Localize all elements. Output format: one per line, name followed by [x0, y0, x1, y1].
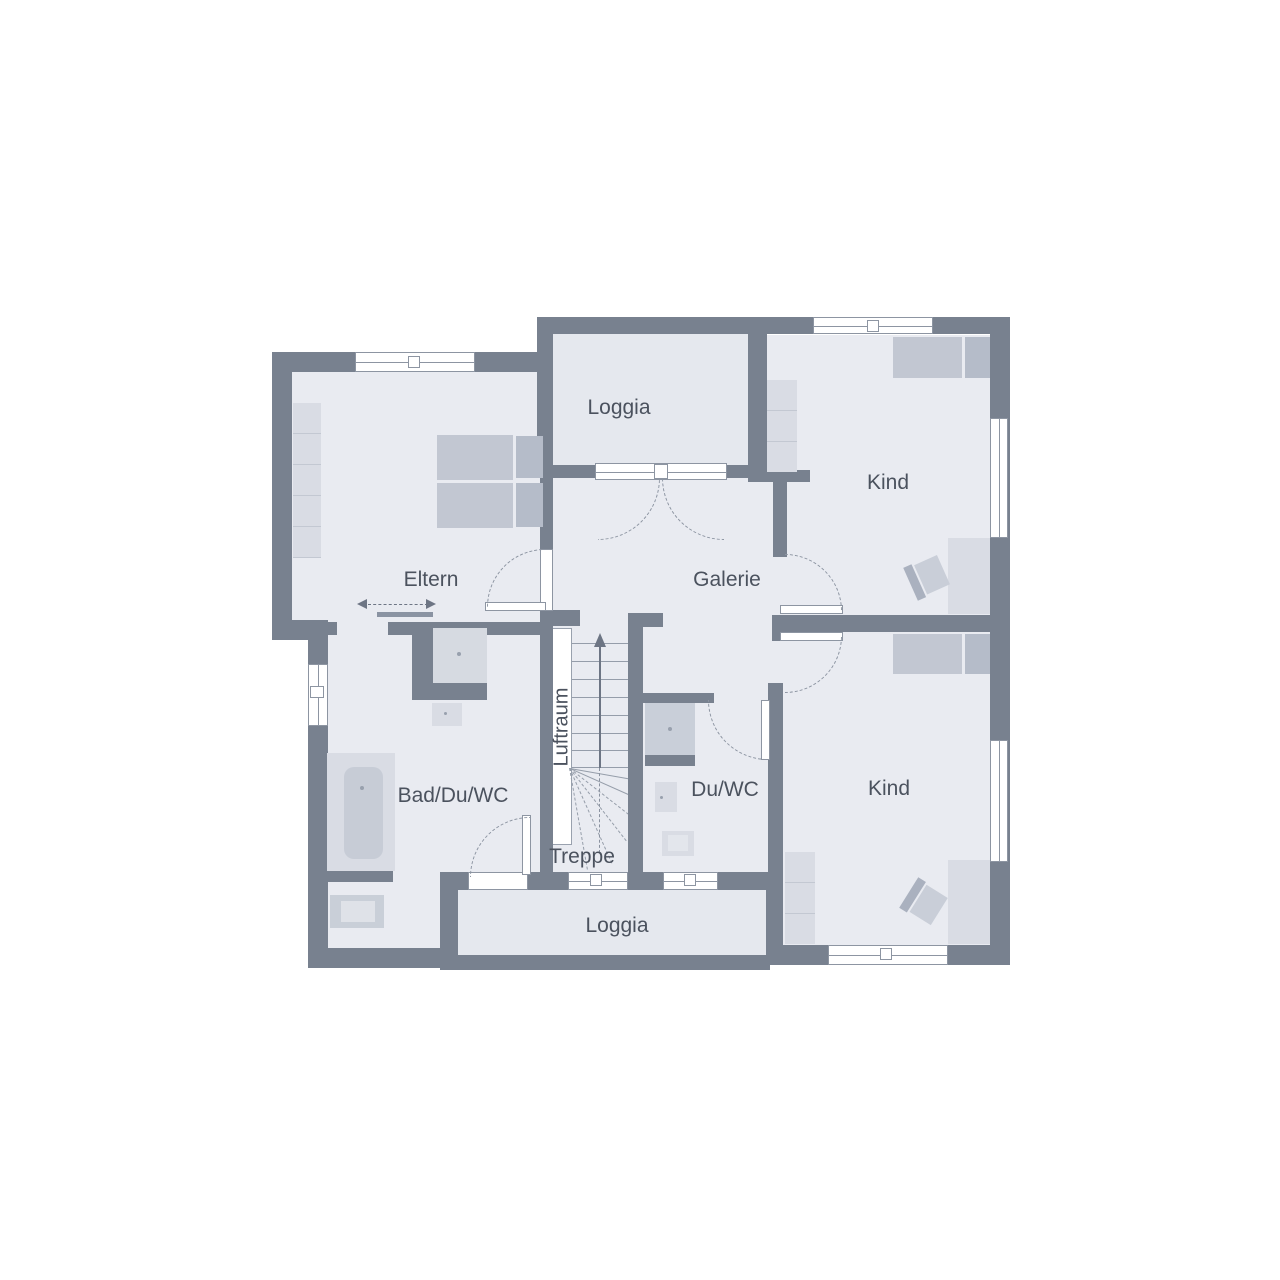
wall-segment [550, 465, 595, 478]
single-bed [893, 634, 990, 674]
door-swing-loggia-left [598, 478, 660, 540]
wall-segment [628, 872, 665, 890]
shower-drain [668, 727, 672, 731]
washbasin-bowl [668, 835, 688, 851]
room-label-treppe: Treppe [549, 845, 615, 869]
arrow-left-icon [357, 599, 367, 609]
sliding-door-arrow-line [368, 604, 428, 605]
door-arc [785, 636, 842, 693]
room-label-kind-top: Kind [867, 471, 909, 495]
wall-segment [292, 622, 337, 635]
mattress [893, 337, 962, 378]
window-handle [310, 686, 324, 698]
room-label-du-wc: Du/WC [691, 778, 759, 802]
window-handle [867, 320, 879, 332]
wall-segment [773, 482, 787, 557]
wall-segment [772, 615, 990, 632]
wall-segment [440, 955, 770, 970]
door-arc [785, 554, 842, 611]
door-arc [662, 478, 724, 540]
toilet [432, 703, 462, 726]
stair-direction-line [599, 646, 601, 768]
window-handle [880, 948, 892, 960]
door-arc [598, 478, 660, 540]
room-label-loggia-top: Loggia [587, 396, 650, 420]
stair-direction-arrow-icon [594, 633, 606, 647]
wardrobe [767, 380, 797, 472]
wall-segment [718, 872, 770, 890]
arrow-right-icon [426, 599, 436, 609]
wall-segment [640, 693, 714, 703]
room-label-eltern: Eltern [404, 568, 459, 592]
desk [948, 538, 990, 614]
room-label-kind-bottom: Kind [868, 777, 910, 801]
door-swing-eltern [487, 549, 545, 607]
room-label-loggia-bottom: Loggia [585, 914, 648, 938]
stair-direction-line-dashed [599, 768, 600, 853]
pillow [965, 634, 990, 674]
door-swing-kind-top [785, 554, 842, 611]
door-swing-loggia-right [662, 478, 724, 540]
wall-segment [528, 872, 570, 890]
door-swing-bad [470, 817, 530, 877]
wall-segment [537, 317, 1010, 334]
door-handle [654, 464, 668, 479]
pillow [965, 337, 990, 378]
floor-plan: Loggia Kind Eltern Galerie Luftraum Bad/… [0, 0, 1280, 1280]
mattress [437, 483, 513, 528]
double-bed [437, 435, 543, 529]
desk [948, 860, 990, 944]
window [990, 418, 1008, 538]
room-label-galerie: Galerie [693, 568, 761, 592]
wardrobe [785, 852, 815, 944]
shower-wall [412, 683, 487, 700]
room-label-luftraum: Luftraum [551, 688, 574, 767]
bathtub-drain [360, 786, 364, 790]
wall-segment [748, 317, 767, 478]
wall-segment [272, 352, 292, 640]
window-handle [590, 874, 602, 886]
mattress [893, 634, 962, 674]
door-swing-duwc [708, 700, 768, 760]
single-bed [893, 337, 990, 378]
window-handle [408, 356, 420, 368]
door-arc [487, 549, 545, 607]
washbasin-bowl [341, 901, 375, 922]
door-arc [470, 817, 530, 877]
wall-segment [990, 317, 1010, 965]
wall-segment [308, 948, 458, 968]
toilet [655, 782, 677, 812]
sliding-door-opening [337, 622, 388, 635]
shower-wall [412, 628, 433, 688]
window-handle [684, 874, 696, 886]
pillow [516, 436, 543, 478]
wall-segment [628, 615, 643, 872]
wall-segment [440, 872, 458, 957]
wardrobe [293, 403, 321, 558]
room-label-bad-du-wc: Bad/Du/WC [398, 784, 509, 808]
wall-segment [768, 683, 783, 872]
bathtub-basin [344, 767, 383, 859]
sliding-door-leaf [377, 612, 433, 617]
toilet-detail [444, 712, 447, 715]
door-opening-kind-bottom [768, 640, 783, 683]
window [990, 740, 1008, 862]
pillow [516, 483, 543, 527]
mattress [437, 435, 513, 480]
door-swing-kind-bottom [785, 636, 842, 693]
shower-wall [645, 755, 695, 766]
door-arc [708, 700, 768, 760]
shower-drain [457, 652, 461, 656]
toilet-detail [660, 796, 663, 799]
